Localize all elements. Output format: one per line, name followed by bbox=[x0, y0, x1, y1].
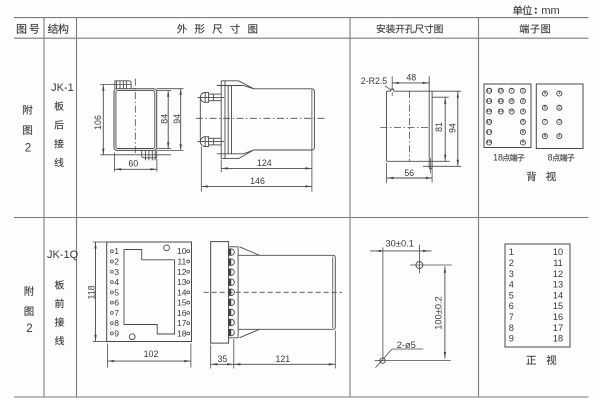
svg-text:2-ø5: 2-ø5 bbox=[397, 340, 416, 350]
svg-text:11: 11 bbox=[553, 258, 563, 268]
svg-text:10: 10 bbox=[177, 246, 187, 256]
svg-text:8: 8 bbox=[544, 133, 547, 139]
svg-text:2: 2 bbox=[25, 143, 31, 155]
svg-text:1: 1 bbox=[522, 88, 525, 94]
svg-text:5: 5 bbox=[114, 287, 119, 297]
svg-text:56: 56 bbox=[404, 168, 414, 178]
svg-text:102: 102 bbox=[144, 349, 159, 359]
svg-text:7: 7 bbox=[544, 119, 547, 125]
svg-text:14: 14 bbox=[177, 287, 187, 297]
svg-text:JK-1Q: JK-1Q bbox=[47, 249, 79, 261]
svg-text:8: 8 bbox=[114, 318, 119, 328]
svg-text:94: 94 bbox=[172, 114, 182, 124]
svg-text:2: 2 bbox=[509, 258, 514, 268]
svg-text:13: 13 bbox=[486, 88, 492, 94]
svg-text:14: 14 bbox=[486, 98, 492, 104]
svg-text:11: 11 bbox=[177, 256, 186, 266]
svg-text:11: 11 bbox=[498, 98, 503, 104]
svg-text:4: 4 bbox=[522, 119, 525, 125]
svg-text:15: 15 bbox=[553, 301, 563, 311]
svg-text:3: 3 bbox=[558, 119, 561, 125]
svg-text:6: 6 bbox=[522, 139, 525, 145]
svg-text:18: 18 bbox=[553, 334, 563, 344]
svg-text:16: 16 bbox=[553, 312, 563, 322]
svg-text:7: 7 bbox=[510, 88, 513, 94]
svg-text:7: 7 bbox=[114, 308, 119, 318]
svg-text:60: 60 bbox=[128, 158, 138, 168]
svg-text:124: 124 bbox=[257, 158, 272, 168]
svg-text:100±0.2: 100±0.2 bbox=[433, 296, 443, 330]
svg-text:5: 5 bbox=[509, 290, 514, 300]
svg-text:18: 18 bbox=[486, 139, 492, 145]
svg-text:4: 4 bbox=[558, 133, 561, 139]
svg-text:12: 12 bbox=[498, 108, 504, 114]
svg-text:17: 17 bbox=[486, 129, 492, 135]
svg-text:12: 12 bbox=[553, 269, 563, 279]
svg-text:7: 7 bbox=[509, 312, 514, 322]
svg-text:6: 6 bbox=[114, 298, 119, 308]
svg-text:8: 8 bbox=[510, 98, 513, 104]
svg-text:12: 12 bbox=[177, 267, 187, 277]
svg-text:84: 84 bbox=[159, 114, 169, 124]
svg-text:6: 6 bbox=[544, 104, 547, 110]
svg-text:1: 1 bbox=[558, 90, 561, 96]
svg-text:146: 146 bbox=[250, 176, 265, 186]
svg-text:1: 1 bbox=[509, 247, 514, 257]
svg-text:mm: mm bbox=[541, 5, 559, 17]
svg-text:3: 3 bbox=[509, 269, 514, 279]
svg-text:2: 2 bbox=[558, 104, 561, 110]
svg-text:9: 9 bbox=[114, 328, 119, 338]
svg-text:8: 8 bbox=[548, 153, 553, 163]
svg-text:13: 13 bbox=[553, 280, 563, 290]
svg-text:121: 121 bbox=[275, 354, 290, 364]
svg-text:106: 106 bbox=[93, 115, 103, 130]
svg-text:48: 48 bbox=[406, 72, 416, 82]
svg-text:4: 4 bbox=[509, 280, 514, 290]
svg-text:13: 13 bbox=[177, 277, 187, 287]
svg-text:JK-1: JK-1 bbox=[51, 82, 74, 94]
svg-text:15: 15 bbox=[177, 298, 187, 308]
svg-text:9: 9 bbox=[510, 108, 513, 114]
svg-text:17: 17 bbox=[553, 323, 563, 333]
svg-text:5: 5 bbox=[544, 90, 547, 96]
svg-text:3: 3 bbox=[522, 108, 525, 114]
svg-text:2: 2 bbox=[114, 256, 119, 266]
svg-text:8: 8 bbox=[509, 323, 514, 333]
svg-text:16: 16 bbox=[486, 119, 492, 125]
svg-text:6: 6 bbox=[509, 301, 514, 311]
svg-text:15: 15 bbox=[486, 108, 492, 114]
svg-text:18: 18 bbox=[177, 328, 187, 338]
svg-text:5: 5 bbox=[522, 129, 525, 135]
svg-text:94: 94 bbox=[447, 123, 457, 133]
svg-text:1: 1 bbox=[114, 246, 119, 256]
svg-text:2: 2 bbox=[26, 323, 32, 335]
svg-text:14: 14 bbox=[553, 290, 563, 300]
svg-text:81: 81 bbox=[434, 122, 444, 132]
svg-text:10: 10 bbox=[553, 247, 563, 257]
svg-text:2-R2.5: 2-R2.5 bbox=[361, 76, 388, 86]
svg-text:18: 18 bbox=[493, 153, 503, 163]
svg-text:17: 17 bbox=[177, 318, 187, 328]
svg-text:3: 3 bbox=[114, 267, 119, 277]
svg-text:2: 2 bbox=[522, 98, 525, 104]
svg-text:16: 16 bbox=[177, 308, 187, 318]
svg-text:4: 4 bbox=[114, 277, 119, 287]
svg-text:35: 35 bbox=[218, 354, 228, 364]
svg-text:118: 118 bbox=[86, 285, 96, 299]
svg-text:30±0.1: 30±0.1 bbox=[386, 239, 414, 249]
svg-text:10: 10 bbox=[498, 88, 504, 94]
svg-text:9: 9 bbox=[509, 334, 514, 344]
